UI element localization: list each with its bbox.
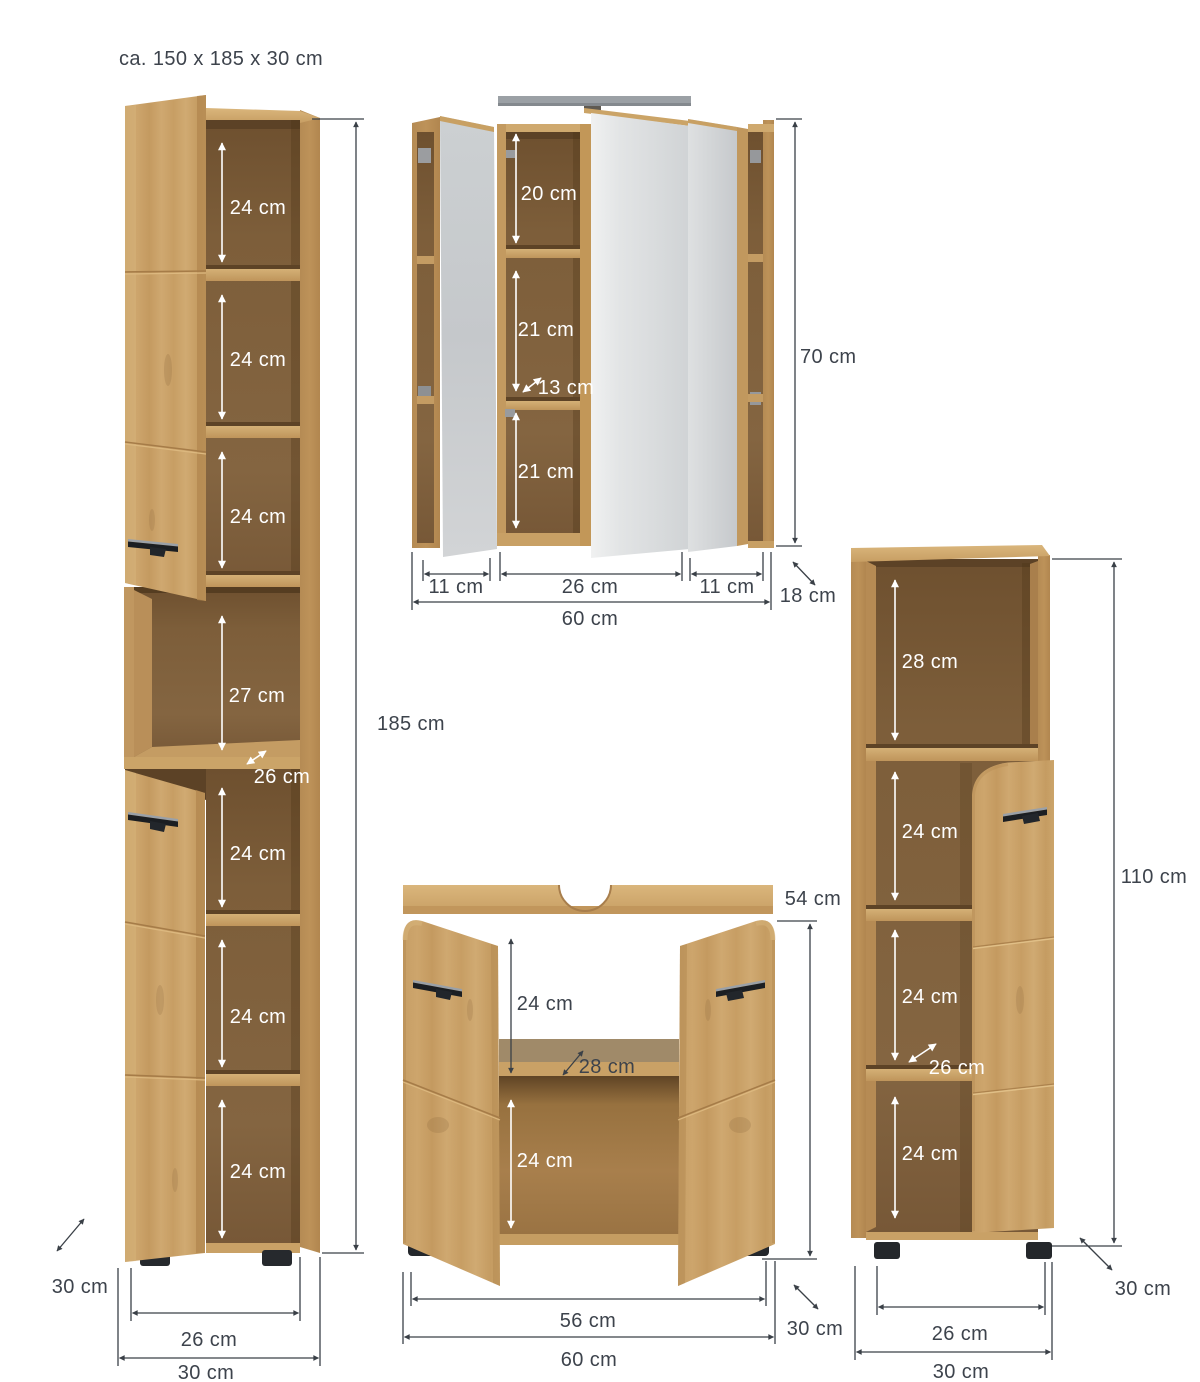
svg-text:30 cm: 30 cm xyxy=(1115,1278,1171,1300)
svg-text:185 cm: 185 cm xyxy=(377,713,445,735)
svg-text:26 cm: 26 cm xyxy=(181,1329,237,1351)
svg-text:24 cm: 24 cm xyxy=(230,1161,286,1183)
svg-text:21 cm: 21 cm xyxy=(518,319,574,341)
svg-text:26 cm: 26 cm xyxy=(562,576,618,598)
svg-text:24 cm: 24 cm xyxy=(902,821,958,843)
svg-text:13 cm: 13 cm xyxy=(538,377,594,399)
svg-text:24 cm: 24 cm xyxy=(902,1143,958,1165)
svg-text:24 cm: 24 cm xyxy=(517,1150,573,1172)
svg-text:30 cm: 30 cm xyxy=(787,1318,843,1340)
svg-text:24 cm: 24 cm xyxy=(230,1006,286,1028)
svg-text:24 cm: 24 cm xyxy=(902,986,958,1008)
svg-text:30 cm: 30 cm xyxy=(52,1276,108,1298)
svg-text:26 cm: 26 cm xyxy=(929,1057,985,1079)
svg-text:24 cm: 24 cm xyxy=(230,506,286,528)
svg-text:11 cm: 11 cm xyxy=(429,576,484,598)
svg-text:26 cm: 26 cm xyxy=(932,1323,988,1345)
svg-text:21 cm: 21 cm xyxy=(518,461,574,483)
svg-text:30 cm: 30 cm xyxy=(933,1361,989,1382)
svg-text:28 cm: 28 cm xyxy=(579,1056,635,1078)
svg-text:54 cm: 54 cm xyxy=(785,888,841,910)
svg-text:20 cm: 20 cm xyxy=(521,183,577,205)
svg-text:28 cm: 28 cm xyxy=(902,651,958,673)
svg-text:24 cm: 24 cm xyxy=(230,197,286,219)
svg-text:110 cm: 110 cm xyxy=(1121,866,1188,888)
svg-text:18 cm: 18 cm xyxy=(780,585,836,607)
svg-text:60 cm: 60 cm xyxy=(562,608,618,630)
svg-text:26 cm: 26 cm xyxy=(254,766,310,788)
svg-text:11 cm: 11 cm xyxy=(700,576,755,598)
svg-text:24 cm: 24 cm xyxy=(230,349,286,371)
svg-text:56 cm: 56 cm xyxy=(560,1310,616,1332)
svg-text:30 cm: 30 cm xyxy=(178,1362,234,1382)
svg-text:ca. 150 x 185 x 30 cm: ca. 150 x 185 x 30 cm xyxy=(119,48,323,70)
svg-text:24 cm: 24 cm xyxy=(230,843,286,865)
svg-text:60 cm: 60 cm xyxy=(561,1349,617,1371)
svg-text:24 cm: 24 cm xyxy=(517,993,573,1015)
svg-text:27 cm: 27 cm xyxy=(229,685,285,707)
svg-text:70 cm: 70 cm xyxy=(800,346,856,368)
